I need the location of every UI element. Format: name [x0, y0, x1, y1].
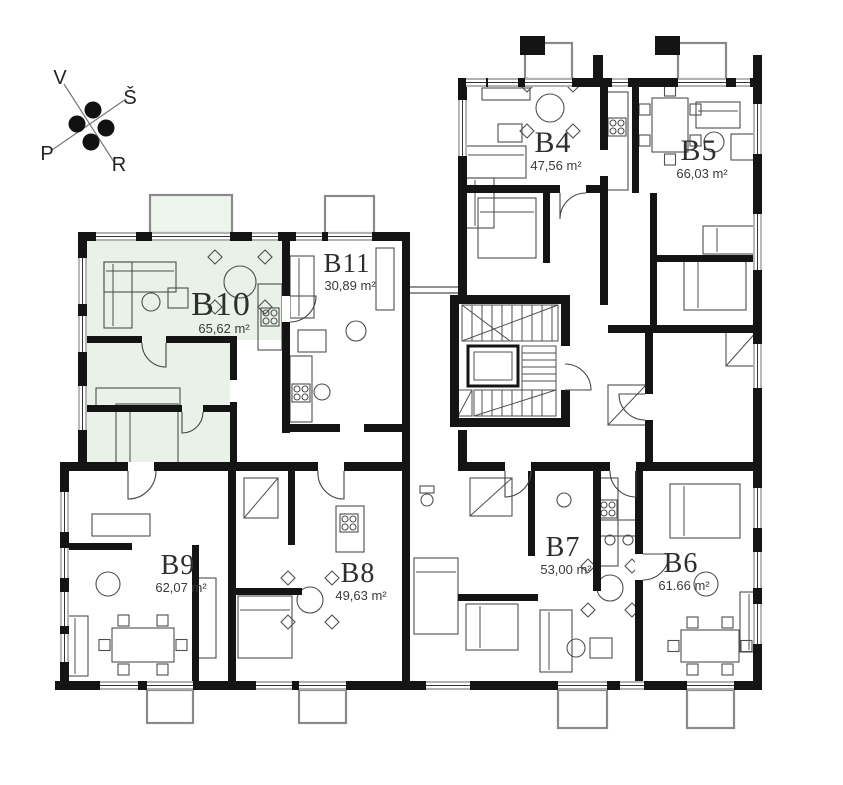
- sofa: [540, 610, 572, 672]
- hob-burner: [294, 386, 300, 392]
- hob-burner: [294, 394, 300, 400]
- bed: [684, 258, 746, 310]
- unit-id: B8: [341, 558, 376, 589]
- hob-burner: [350, 516, 356, 522]
- door-opening: [418, 462, 446, 471]
- wall: [402, 241, 410, 433]
- unit-area: 62,07 m²: [155, 580, 207, 595]
- bed: [703, 226, 755, 254]
- wall: [458, 594, 538, 601]
- chair: [687, 617, 698, 628]
- chair: [118, 615, 129, 626]
- hob-burner: [601, 502, 607, 508]
- balcony: [299, 690, 346, 723]
- hob-burner: [601, 510, 607, 516]
- hob-burner: [618, 120, 624, 126]
- desk: [92, 514, 150, 536]
- compass-letter-sw: P: [40, 143, 53, 165]
- wall: [655, 36, 680, 55]
- chair: [281, 571, 295, 585]
- unit-area: 49,63 m²: [335, 588, 387, 603]
- unit-label-B6[interactable]: B661.66 m²: [658, 548, 710, 593]
- compass-dot: [85, 102, 102, 119]
- sofa: [466, 146, 526, 178]
- furniture: [298, 330, 326, 352]
- furniture: [498, 124, 522, 142]
- wall: [450, 418, 570, 427]
- wall: [520, 36, 545, 55]
- hob-burner: [610, 120, 616, 126]
- wall: [608, 325, 762, 333]
- wall: [402, 471, 410, 681]
- furniture: [590, 638, 612, 658]
- door-opening: [128, 462, 154, 471]
- door-opening: [318, 462, 344, 471]
- wall: [228, 471, 236, 681]
- unit-id: B4: [534, 126, 571, 159]
- door-opening: [560, 185, 586, 193]
- wall: [288, 471, 295, 545]
- wall: [593, 471, 601, 591]
- wall: [561, 295, 570, 346]
- staircase: [410, 287, 558, 416]
- chair: [741, 641, 752, 652]
- unit-label-B9[interactable]: B962,07 m²: [155, 550, 207, 595]
- chair: [581, 603, 595, 617]
- chair: [157, 615, 168, 626]
- unit-B10-highlight[interactable]: [84, 238, 286, 468]
- unit-area: 53,00 m²: [540, 562, 592, 577]
- wall: [652, 255, 760, 262]
- door-swing: [318, 471, 344, 499]
- floor-plan-page: B447,56 m²B566,03 m²B661.66 m²B753,00 m²…: [0, 0, 843, 785]
- compass-letter-ne: Š: [123, 86, 136, 109]
- chair: [176, 640, 187, 651]
- chair: [118, 664, 129, 675]
- wall: [236, 588, 302, 595]
- kitchen-counter: [290, 356, 312, 422]
- door-opening: [645, 394, 653, 420]
- sofa: [66, 616, 88, 676]
- balcony: [687, 690, 734, 728]
- unit-id: B5: [680, 134, 717, 167]
- unit-label-B8[interactable]: B849,63 m²: [335, 558, 387, 603]
- door-opening: [505, 462, 531, 471]
- door-opening: [282, 296, 290, 322]
- unit-id: B6: [664, 548, 699, 579]
- wall: [203, 405, 233, 412]
- hob-burner: [609, 502, 615, 508]
- unit-id: B10: [191, 286, 251, 323]
- elevator-car: [474, 352, 512, 380]
- unit-area: 30,89 m²: [324, 278, 376, 293]
- compass-dot: [69, 116, 86, 133]
- table-round: [346, 321, 366, 341]
- compass-letter-nw: V: [53, 67, 67, 89]
- unit-area: 61.66 m²: [658, 578, 710, 593]
- sofa: [696, 102, 740, 128]
- bed: [466, 604, 518, 650]
- chair: [687, 664, 698, 675]
- wall: [753, 55, 762, 78]
- hob-burner: [342, 516, 348, 522]
- wall: [84, 405, 182, 412]
- unit-area: 65,62 m²: [198, 321, 250, 336]
- door-swing: [505, 471, 531, 497]
- toilet: [420, 486, 434, 493]
- door-opening: [610, 462, 636, 471]
- compass-dot: [83, 134, 100, 151]
- balcony: [678, 43, 726, 79]
- door-swing: [619, 394, 645, 420]
- bed: [238, 596, 292, 658]
- wardrobe: [376, 248, 394, 310]
- unit-label-B11[interactable]: B1130,89 m²: [323, 248, 376, 293]
- door-opening: [600, 150, 608, 176]
- wall: [84, 336, 142, 343]
- wall: [600, 87, 608, 193]
- door-opening: [635, 554, 643, 580]
- compass-rose: VŠPR: [40, 67, 136, 176]
- balcony: [150, 195, 232, 233]
- wall: [593, 55, 603, 78]
- floor-plan-canvas: B447,56 m²B566,03 m²B661.66 m²B753,00 m²…: [0, 0, 843, 785]
- door-swing: [128, 471, 156, 499]
- compass-dot: [98, 120, 115, 137]
- kitchen-counter: [606, 92, 628, 190]
- chair: [665, 154, 676, 165]
- table-round: [96, 572, 120, 596]
- sofa: [290, 256, 314, 318]
- door-swing: [560, 193, 586, 219]
- chair: [668, 641, 679, 652]
- wall: [600, 193, 608, 305]
- hob-burner: [350, 524, 356, 530]
- hob-burner: [302, 386, 308, 392]
- tv-shelf: [482, 88, 530, 100]
- unit-label-B10[interactable]: B1065,62 m²: [191, 286, 251, 336]
- wall: [60, 543, 132, 550]
- door-swing: [565, 364, 591, 390]
- hob-burner: [609, 510, 615, 516]
- bed: [414, 558, 458, 634]
- hob-burner: [610, 128, 616, 134]
- wall: [528, 471, 535, 556]
- hob-burner: [302, 394, 308, 400]
- chair: [325, 615, 339, 629]
- unit-id: B9: [161, 550, 196, 581]
- sink: [557, 493, 571, 507]
- wall: [450, 295, 570, 304]
- chair: [639, 104, 650, 115]
- balcony: [325, 196, 374, 233]
- hob-burner: [342, 524, 348, 530]
- bed: [670, 484, 740, 538]
- chair: [281, 615, 295, 629]
- dining-table: [112, 628, 174, 662]
- wall: [632, 87, 639, 193]
- sink: [314, 384, 330, 400]
- compass-letter-se: R: [112, 154, 126, 176]
- sofa: [740, 592, 755, 652]
- table-round: [567, 639, 585, 657]
- highlight-layer: [84, 238, 286, 468]
- unit-area: 47,56 m²: [530, 158, 582, 173]
- balcony: [558, 690, 607, 728]
- chair: [99, 640, 110, 651]
- wall: [543, 193, 550, 263]
- unit-label-B4[interactable]: B447,56 m²: [530, 126, 582, 173]
- unit-label-B7[interactable]: B753,00 m²: [540, 532, 592, 577]
- unit-id: B7: [546, 532, 581, 563]
- chair: [325, 571, 339, 585]
- balcony: [147, 690, 193, 723]
- chair: [639, 135, 650, 146]
- chair: [157, 664, 168, 675]
- door-swing: [610, 471, 636, 497]
- hob-burner: [618, 128, 624, 134]
- wall: [450, 295, 459, 427]
- unit-area: 66,03 m²: [676, 166, 728, 181]
- chair: [722, 617, 733, 628]
- unit-id: B11: [323, 248, 370, 278]
- chair: [722, 664, 733, 675]
- door-opening: [340, 424, 364, 432]
- wall: [561, 390, 570, 427]
- door-opening: [230, 380, 237, 402]
- toilet: [421, 494, 433, 506]
- dining-table: [536, 94, 564, 122]
- wall: [282, 241, 290, 433]
- wall: [166, 336, 232, 343]
- unit-label-B5[interactable]: B566,03 m²: [676, 134, 728, 181]
- dining-table: [681, 630, 739, 662]
